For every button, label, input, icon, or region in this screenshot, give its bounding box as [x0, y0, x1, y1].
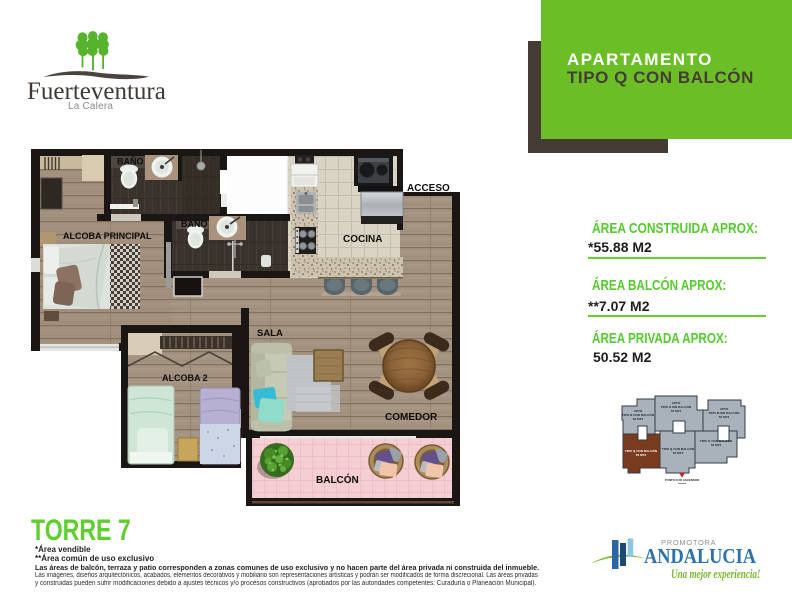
- svg-text:COMEDOR: COMEDOR: [385, 412, 438, 423]
- svg-text:BALCÓN: BALCÓN: [316, 473, 359, 486]
- svg-text:COCINA: COCINA: [343, 234, 382, 245]
- svg-text:ALCOBA PRINCIPAL: ALCOBA PRINCIPAL: [63, 231, 152, 241]
- svg-text:BAÑO: BAÑO: [181, 219, 208, 229]
- svg-text:ACCESO: ACCESO: [407, 183, 450, 194]
- svg-text:BAÑO: BAÑO: [117, 157, 144, 167]
- svg-text:SALA: SALA: [257, 328, 283, 339]
- svg-text:ALCOBA 2: ALCOBA 2: [162, 373, 208, 383]
